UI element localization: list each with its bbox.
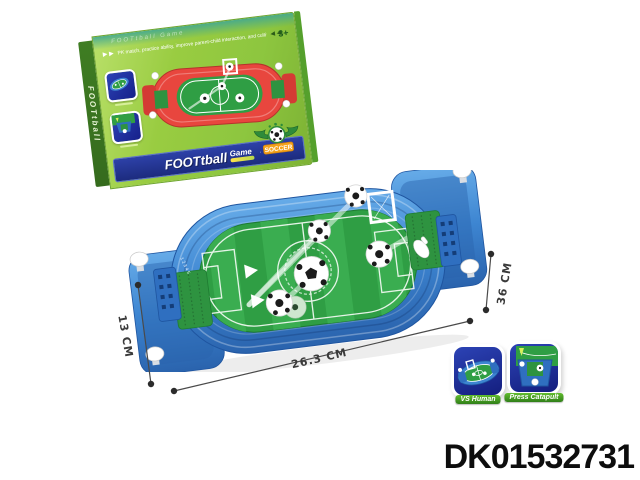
- box-title: FOOTtball: [164, 149, 228, 172]
- art-left-goal-bed: [154, 90, 168, 109]
- retail-box: FOOTtball FOOTtball Game ▶ ▶ PK match, p…: [78, 11, 319, 189]
- play-arrows-icon: ▶ ▶: [102, 50, 114, 58]
- right-goal-assembly: [405, 208, 462, 270]
- football-game-product: 1 2 3 4 5: [126, 170, 490, 372]
- depth-dimension-label: 36 CM: [494, 261, 514, 306]
- feature-inset-vs-human: [451, 344, 505, 398]
- product-illustration: 1 2 3 4 5: [126, 170, 490, 372]
- box-front-panel: FOOTtball Game ▶ ▶ PK match, practice ab…: [91, 12, 312, 190]
- inset-label-vs-human: VS Human: [455, 395, 500, 404]
- soccer-badge-icon: SOCCER: [252, 119, 302, 160]
- box-thumbnail-vs-human: [104, 68, 139, 107]
- vs-human-art: [454, 347, 502, 395]
- art-right-goal-bed: [271, 80, 285, 99]
- box-thumb-caption-dash-2: [120, 144, 138, 148]
- box-thumb-art-1: [106, 71, 132, 97]
- feature-inset-press-catapult: [507, 341, 561, 395]
- inset-label-press-catapult: Press Catapult: [504, 393, 563, 402]
- box-thumb-art-2: [111, 113, 137, 139]
- box-thumbnail-press-catapult: [109, 110, 144, 149]
- box-subtitle-group: Game: [229, 148, 254, 163]
- box-thumb-caption-dash-1: [114, 102, 132, 106]
- press-catapult-art: [510, 344, 558, 392]
- box-thumb-frame-1: [104, 68, 139, 103]
- box-thumb-frame-2: [109, 110, 144, 145]
- product-code: DK01532731: [444, 438, 634, 477]
